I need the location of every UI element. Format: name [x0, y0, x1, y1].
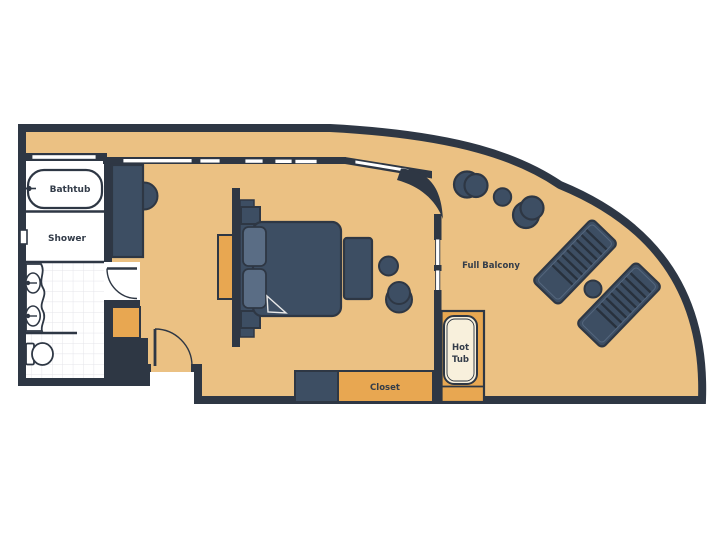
full-balcony-label: Full Balcony: [462, 261, 520, 271]
wall-bath-side-lower: [104, 302, 112, 340]
hot-tub-label-2: Tub: [452, 355, 469, 365]
floor-plan-svg: Bathtub Shower: [0, 0, 726, 535]
balcony-chair-1-seat: [465, 174, 488, 197]
sink-1-knob: [26, 281, 30, 285]
sink-2-knob: [26, 314, 30, 318]
entry-doorway-gap: [151, 361, 191, 372]
partition-window-1: [436, 239, 440, 266]
bench: [344, 238, 372, 299]
bathtub-label: Bathtub: [50, 185, 91, 195]
bathroom: Bathtub Shower: [20, 157, 104, 378]
round-chair: [386, 282, 412, 313]
nightstand-top: [241, 207, 260, 224]
round-chair-seat: [388, 282, 410, 304]
wall-bath-side-upper: [104, 157, 112, 262]
toilet-bowl: [32, 343, 53, 365]
window-2: [200, 159, 220, 163]
partition-seg-1: [434, 214, 442, 240]
side-table-2: [585, 281, 602, 298]
window-3: [245, 159, 263, 163]
wardrobe: [112, 165, 143, 257]
hot-tub-label-1: Hot: [452, 343, 469, 353]
cabinet-orange: [112, 307, 140, 338]
wall-entry-block: [104, 338, 148, 385]
closet-label: Closet: [370, 383, 400, 393]
window-5: [295, 159, 317, 163]
partition-window-2: [436, 270, 440, 291]
headboard-panel: [232, 188, 240, 347]
balcony-chair-2-seat: [521, 197, 544, 220]
window-1: [123, 159, 192, 163]
bathroom-door: [104, 262, 140, 300]
shower-door-handle: [20, 230, 27, 244]
pillow-1: [243, 227, 266, 266]
window-4: [275, 159, 292, 163]
side-table-1: [494, 188, 511, 205]
partition-seg-3: [434, 290, 442, 404]
floor-plan: Bathtub Shower: [0, 0, 726, 535]
balcony-chair-1: [454, 172, 488, 198]
shower-label: Shower: [48, 234, 86, 244]
closet-unit-dark: [295, 371, 338, 402]
window-bathroom: [32, 155, 96, 159]
hot-tub-area: Hot Tub: [442, 311, 485, 402]
bathtub-faucet-knob: [26, 186, 31, 191]
stool: [379, 257, 398, 276]
closet-area: Closet: [295, 371, 433, 402]
pillow-2: [243, 269, 266, 308]
